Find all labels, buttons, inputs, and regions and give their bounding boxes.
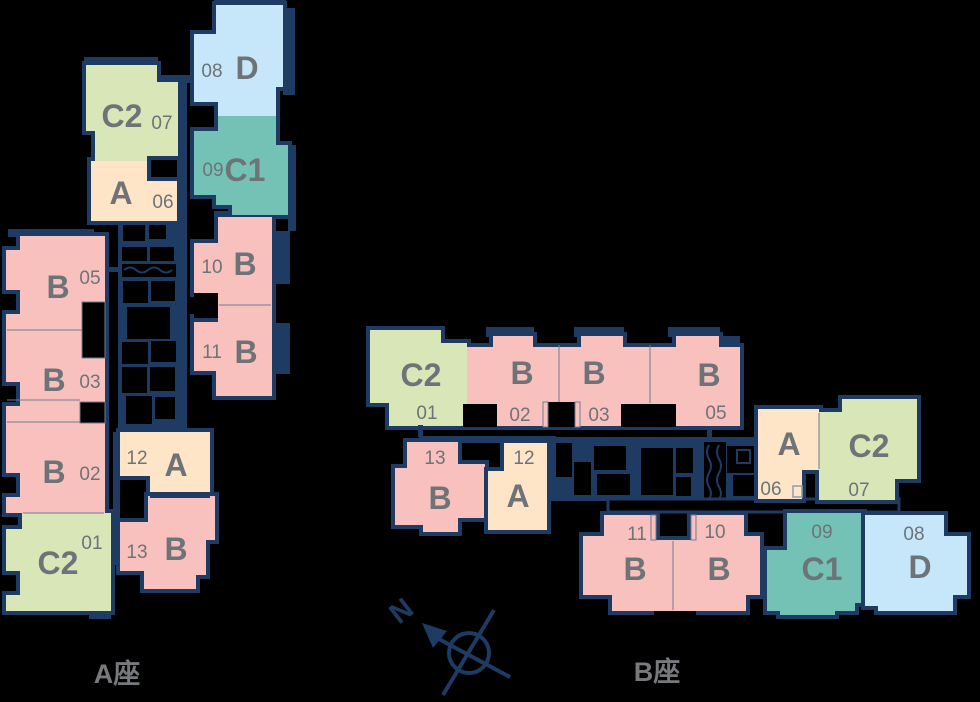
svg-text:10: 10: [704, 522, 725, 543]
svg-text:07: 07: [848, 480, 869, 501]
svg-text:13: 13: [424, 448, 445, 469]
svg-text:B: B: [42, 362, 65, 398]
svg-text:B: B: [510, 355, 533, 391]
svg-text:01: 01: [81, 533, 102, 554]
svg-text:06: 06: [152, 192, 173, 213]
svg-text:B: B: [707, 551, 730, 587]
svg-text:B: B: [582, 355, 605, 391]
svg-text:B: B: [234, 334, 257, 370]
svg-text:C2: C2: [401, 357, 442, 393]
svg-text:B: B: [46, 269, 69, 305]
svg-text:D: D: [235, 50, 258, 86]
svg-text:C1: C1: [225, 152, 266, 188]
svg-text:A: A: [164, 447, 187, 483]
svg-text:05: 05: [79, 268, 100, 289]
svg-text:B: B: [233, 246, 256, 282]
svg-text:11: 11: [202, 342, 222, 363]
svg-text:B: B: [697, 357, 720, 393]
svg-text:B: B: [623, 551, 646, 587]
svg-text:A: A: [506, 478, 529, 514]
svg-text:05: 05: [705, 403, 726, 424]
svg-text:06: 06: [760, 479, 781, 500]
svg-text:12: 12: [126, 448, 147, 469]
svg-text:A: A: [109, 175, 132, 211]
svg-text:A: A: [777, 426, 800, 462]
svg-text:C2: C2: [38, 545, 79, 581]
svg-text:09: 09: [202, 160, 223, 181]
svg-text:01: 01: [416, 403, 437, 424]
svg-text:07: 07: [151, 113, 172, 134]
svg-text:02: 02: [79, 464, 100, 485]
svg-text:02: 02: [509, 405, 530, 426]
svg-text:08: 08: [201, 61, 222, 82]
svg-text:12: 12: [513, 448, 534, 469]
svg-text:D: D: [908, 549, 931, 585]
svg-text:13: 13: [126, 542, 147, 563]
svg-text:B: B: [42, 454, 65, 490]
svg-text:C1: C1: [802, 551, 843, 587]
svg-text:A座: A座: [94, 658, 141, 689]
svg-text:B: B: [428, 480, 451, 516]
svg-text:08: 08: [903, 524, 924, 545]
svg-text:B: B: [164, 531, 187, 567]
svg-text:B座: B座: [634, 656, 681, 687]
svg-text:11: 11: [627, 524, 647, 545]
svg-text:C2: C2: [102, 98, 143, 134]
svg-text:09: 09: [811, 522, 832, 543]
svg-text:10: 10: [201, 257, 222, 278]
svg-text:C2: C2: [849, 428, 890, 464]
svg-text:03: 03: [79, 372, 100, 393]
svg-text:03: 03: [588, 405, 609, 426]
